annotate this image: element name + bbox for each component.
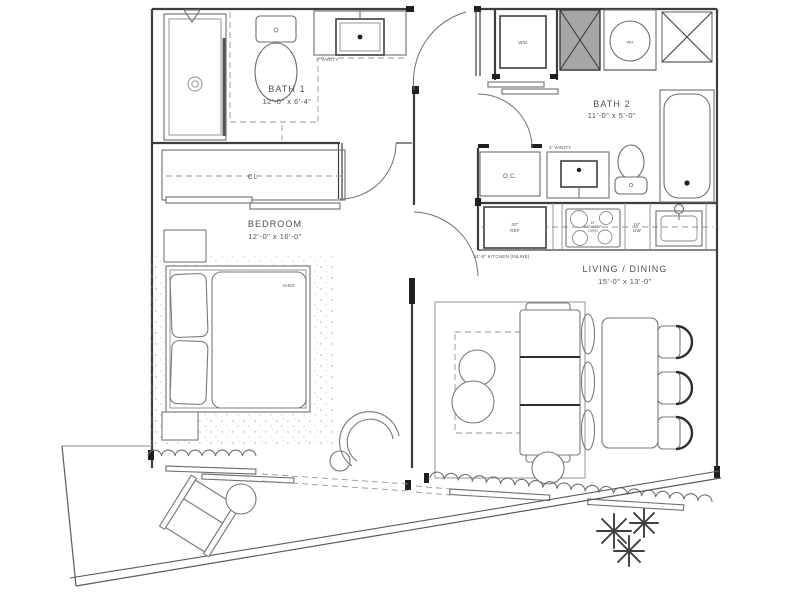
shower-head-icon: [184, 10, 200, 22]
dishwasher-label: DW: [633, 228, 641, 233]
dining-chair: [658, 326, 692, 358]
palm-plant-icon: [597, 509, 658, 566]
washer-dryer-label: W/D: [518, 40, 528, 45]
kitchen: 30" REF 30" COOKTOP OVEN 18" DW 11'-6" K…: [474, 203, 717, 259]
shaft-x-box: [662, 12, 712, 62]
floor-plan-page: 4' VANITY BATH 1 12'-0" x 6'-4" CL BEDRO…: [0, 0, 800, 600]
room-bath1: 4' VANITY BATH 1 12'-0" x 6'-4": [164, 10, 406, 199]
cooktop: 30" COOKTOP OVEN: [566, 209, 620, 247]
bath2-door: [478, 94, 532, 148]
sofa: [520, 303, 595, 462]
water-heater: WH: [604, 10, 656, 70]
balcony-left-edge: [62, 446, 76, 586]
sliding-door-panel: [588, 499, 684, 510]
owners-closet: O.C.: [480, 152, 540, 196]
wd-closet-slider: [502, 89, 558, 94]
toilet-bath2: [615, 145, 647, 194]
closet-slider-panel: [166, 197, 252, 203]
sofa-bolster: [582, 410, 595, 450]
cooktop-label2: OVEN: [588, 229, 598, 233]
sofa-bolster: [582, 362, 595, 402]
burner-icon: [600, 212, 613, 225]
dishwasher-size: 18": [633, 222, 640, 227]
floor-plan-drawing: 4' VANITY BATH 1 12'-0" x 6'-4" CL BEDRO…: [0, 0, 800, 600]
pillow: [170, 273, 208, 337]
vanity-bath2: 3' VANITY: [547, 145, 609, 198]
bedroom-door: [414, 212, 478, 276]
balcony: [62, 446, 721, 586]
mattress: [212, 272, 306, 408]
entry-door: [413, 10, 480, 90]
wd-closet-slider: [488, 82, 544, 87]
washer-dryer-closet: W/D: [488, 16, 558, 94]
closet-cl: CL: [162, 150, 345, 209]
balcony-lounge-chair: [160, 475, 241, 557]
sliding-door-panel: [166, 466, 256, 474]
bedroom-dims: 12'-0" x 16'-0": [248, 232, 302, 241]
faucet-icon: [358, 35, 363, 40]
room-bedroom: BEDROOM 12'-0" x 16'-0" KING: [150, 219, 399, 471]
vanity-bath2-label: 3' VANITY: [549, 145, 571, 150]
sliding-door-panel: [450, 489, 550, 501]
dining-chair: [658, 417, 692, 449]
living-label: LIVING / DINING: [582, 264, 667, 274]
nightstand: [162, 412, 198, 440]
bath1-dims: 12'-0" x 6'-4": [263, 97, 312, 106]
closet-label: CL: [248, 174, 259, 181]
owners-closet-label: O.C.: [503, 174, 517, 180]
curved-lounge-chair: [330, 412, 399, 471]
shower-drain-icon: [188, 77, 202, 91]
ottoman: [452, 381, 494, 423]
bath1-door: [339, 143, 397, 199]
dining-chair: [658, 372, 692, 404]
faucet-icon: [675, 205, 684, 214]
bed-size-label: KING: [283, 283, 295, 288]
closet-slider-panel: [250, 203, 340, 209]
side-table: [532, 452, 564, 484]
room-living: LIVING / DINING 15'-0" x 13'-0": [435, 264, 692, 484]
bath1-label: BATH 1: [268, 84, 305, 94]
nightstand: [164, 230, 206, 262]
living-dims: 15'-0" x 13'-0": [598, 277, 652, 286]
kitchen-label: 11'-6" KITCHEN (INLINE): [474, 254, 530, 259]
shower-stall: [164, 10, 226, 140]
ottoman: [459, 350, 495, 386]
room-bath2: W/D WH BATH 2 11'-0" x 5'-0": [478, 10, 714, 202]
bedroom-label: BEDROOM: [248, 219, 302, 229]
sofa-bolster: [582, 314, 595, 354]
dining-table: [602, 318, 658, 448]
vanity-bath1: 4' VANITY: [314, 11, 406, 62]
bathtub: [660, 90, 714, 202]
balcony-table: [226, 484, 256, 514]
refrigerator: 30" REF: [484, 207, 546, 248]
faucet-icon: [577, 168, 581, 172]
dishwasher: 18" DW: [633, 222, 641, 233]
burner-icon: [573, 231, 588, 246]
water-heater-label: WH: [627, 40, 634, 45]
burner-icon: [598, 230, 612, 244]
bath2-label: BATH 2: [593, 99, 630, 109]
mechanical-shaft: [560, 10, 600, 70]
sliding-door-panel: [202, 474, 294, 483]
fridge-size: 30": [511, 222, 518, 227]
pillow: [170, 340, 208, 404]
drapery-line: [148, 450, 256, 456]
bath2-dims: 11'-0" x 5'-0": [588, 111, 636, 120]
tub-drain-icon: [684, 180, 689, 185]
kitchen-sink: [656, 205, 702, 247]
king-bed: KING: [166, 266, 310, 412]
fridge-label: REF: [510, 228, 520, 233]
